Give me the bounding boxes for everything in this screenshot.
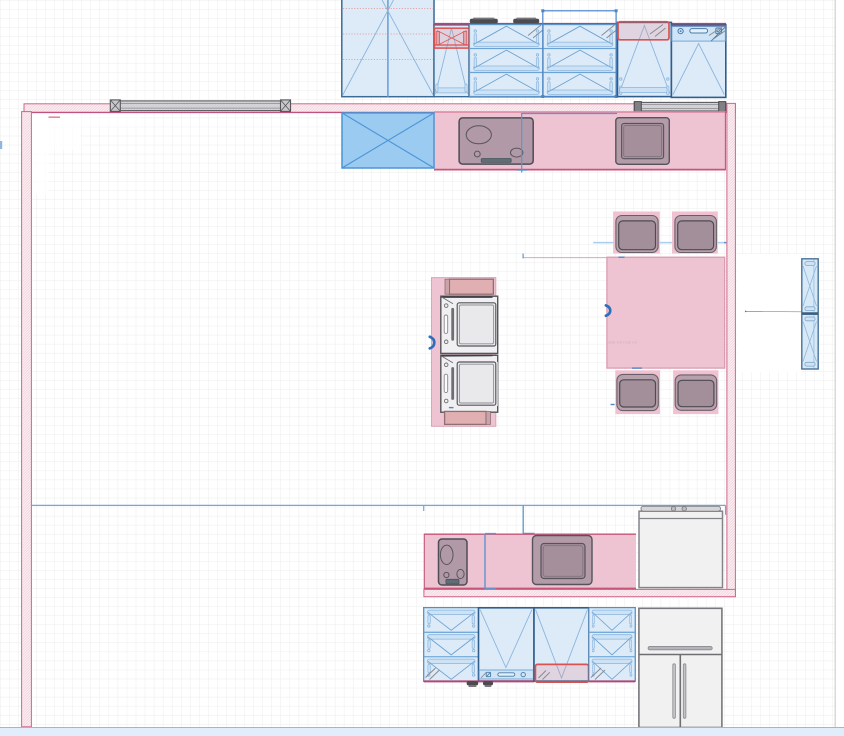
svg-text:table 120 x 120 cm: table 120 x 120 cm xyxy=(608,341,637,345)
